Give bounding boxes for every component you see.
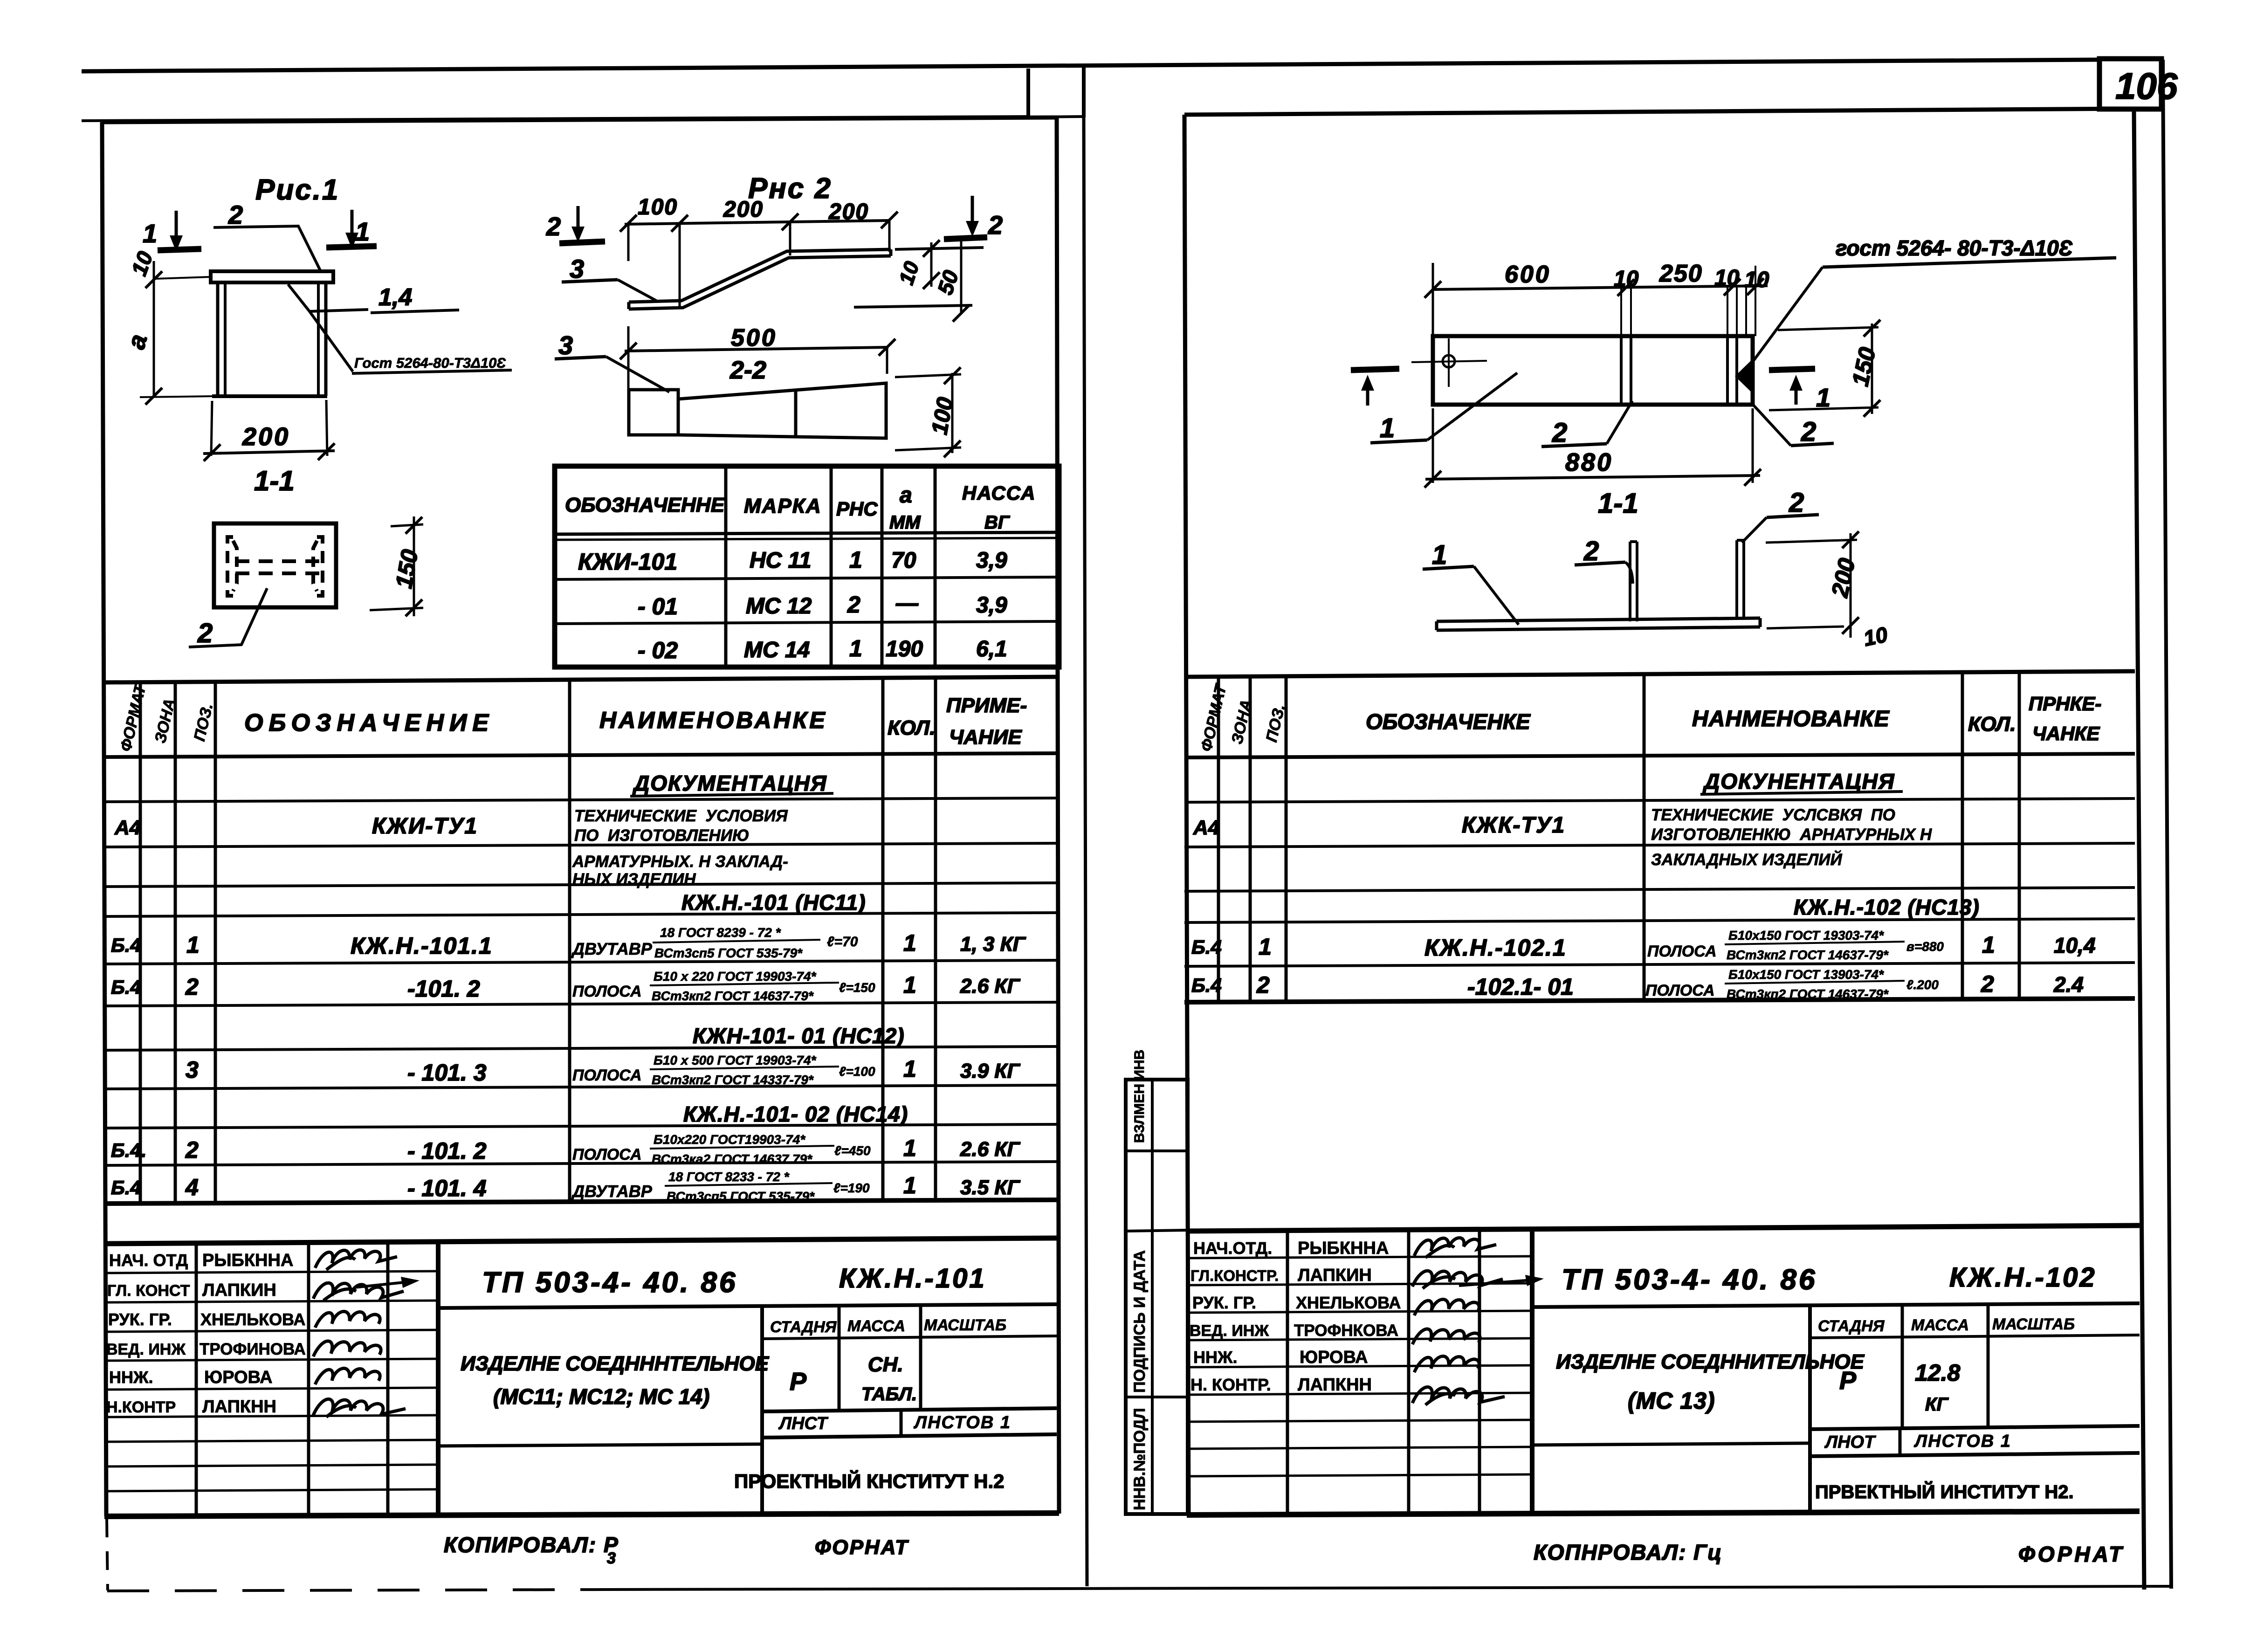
svg-text:ВГ: ВГ [984, 512, 1011, 533]
svg-text:КЖ.Н.-102.1: КЖ.Н.-102.1 [1424, 935, 1567, 961]
svg-text:НАССА: НАССА [962, 482, 1036, 504]
svg-text:Б.4: Б.4 [111, 1177, 141, 1198]
svg-text:ФОРНАТ: ФОРНАТ [815, 1536, 909, 1559]
svg-text:ВЗЛМЕН ИНВ: ВЗЛМЕН ИНВ [1132, 1050, 1147, 1143]
svg-text:РЫБКННА: РЫБКННА [1298, 1239, 1389, 1258]
svg-text:Рис.1: Рис.1 [255, 174, 339, 206]
svg-text:ЛАПКИН: ЛАПКИН [202, 1280, 276, 1300]
svg-text:ДОКУМЕНТАЦНЯ: ДОКУМЕНТАЦНЯ [632, 771, 827, 795]
svg-text:МАСШТАБ: МАСШТАБ [1992, 1315, 2075, 1333]
svg-text:ИЗДЕЛНЕ СОЕДННИТЕЛЬНОЕ: ИЗДЕЛНЕ СОЕДННИТЕЛЬНОЕ [1556, 1350, 1865, 1373]
svg-text:ТРОФНКОВА: ТРОФНКОВА [1294, 1322, 1398, 1340]
svg-text:ПОЛОСА: ПОЛОСА [1645, 982, 1715, 999]
svg-text:РУК. ГР.: РУК. ГР. [1192, 1293, 1256, 1312]
svg-text:-102.1- 01: -102.1- 01 [1467, 974, 1574, 1000]
svg-text:КЖН-101- 01 (НС12): КЖН-101- 01 (НС12) [693, 1024, 905, 1048]
svg-text:ПРОЕКТНЫЙ КНСТИТУТ Н.2: ПРОЕКТНЫЙ КНСТИТУТ Н.2 [734, 1470, 1005, 1492]
svg-text:2: 2 [847, 592, 860, 618]
svg-text:2-2: 2-2 [729, 356, 766, 384]
svg-text:2: 2 [185, 1137, 199, 1163]
svg-text:1-1: 1-1 [254, 465, 295, 496]
svg-text:КЖ.Н.-102: КЖ.Н.-102 [1949, 1262, 2097, 1293]
svg-text:КЖ.Н.-101- 02 (НС14): КЖ.Н.-101- 02 (НС14) [683, 1102, 908, 1126]
svg-text:НАЧ.ОТД.: НАЧ.ОТД. [1193, 1239, 1272, 1258]
svg-text:СН.: СН. [868, 1353, 903, 1376]
svg-text:2: 2 [1583, 536, 1599, 566]
svg-text:2.6 КГ: 2.6 КГ [960, 1138, 1020, 1161]
svg-text:ПО ИЗГОТОВЛЕНИЮ: ПО ИЗГОТОВЛЕНИЮ [574, 826, 749, 845]
svg-text:ОБОЗНАЧЕНКЕ: ОБОЗНАЧЕНКЕ [1366, 709, 1531, 734]
svg-text:ЧАНИЕ: ЧАНИЕ [949, 726, 1022, 749]
svg-text:МС 14: МС 14 [744, 638, 810, 662]
svg-text:ВЕД. ИНЖ: ВЕД. ИНЖ [106, 1341, 186, 1358]
svg-text:РУК. ГР.: РУК. ГР. [108, 1310, 172, 1329]
svg-text:ℓ=450: ℓ=450 [834, 1143, 871, 1158]
svg-text:3,9: 3,9 [976, 593, 1007, 618]
svg-text:ЮРОВА: ЮРОВА [204, 1368, 273, 1387]
svg-text:НС 11: НС 11 [750, 548, 812, 573]
svg-text:70: 70 [891, 548, 916, 573]
svg-text:18 ГОСТ 8239 - 72 *: 18 ГОСТ 8239 - 72 * [660, 925, 781, 940]
svg-text:1: 1 [1432, 540, 1447, 570]
svg-text:2: 2 [228, 200, 243, 229]
svg-text:СТАДНЯ: СТАДНЯ [770, 1318, 837, 1336]
svg-text:РЫБКННА: РЫБКННА [202, 1251, 293, 1270]
svg-text:ПРИМЕ-: ПРИМЕ- [946, 694, 1027, 717]
svg-text:ТЕХНИЧЕСКИЕ УСЛОВИЯ: ТЕХНИЧЕСКИЕ УСЛОВИЯ [574, 807, 788, 825]
svg-text:ТАБЛ.: ТАБЛ. [861, 1384, 917, 1404]
svg-text:КЖ.Н.-101.1: КЖ.Н.-101.1 [351, 933, 493, 959]
svg-text:ГЛ. КОНСТ: ГЛ. КОНСТ [107, 1282, 190, 1300]
svg-text:ℓ=150: ℓ=150 [839, 980, 875, 995]
svg-text:—: — [895, 591, 919, 616]
svg-text:ТП 503-4- 40. 86: ТП 503-4- 40. 86 [1562, 1264, 1817, 1296]
svg-text:1-1: 1-1 [1598, 488, 1638, 519]
svg-text:ПОЛОСА: ПОЛОСА [572, 1146, 642, 1163]
svg-text:ПОЛОСА: ПОЛОСА [1647, 943, 1717, 960]
svg-text:ВЕД. ИНЖ: ВЕД. ИНЖ [1190, 1322, 1269, 1340]
svg-text:ВСт3ка2 ГОСТ 14637.79*: ВСт3ка2 ГОСТ 14637.79* [652, 1152, 812, 1166]
svg-text:ЮРОВА: ЮРОВА [1300, 1348, 1368, 1367]
svg-text:200: 200 [242, 423, 290, 451]
svg-text:1: 1 [1259, 934, 1272, 960]
svg-text:ЧАНКЕ: ЧАНКЕ [2032, 723, 2100, 744]
svg-text:3,9: 3,9 [976, 548, 1007, 573]
svg-text:1: 1 [903, 1056, 916, 1082]
svg-text:АРМАТУРНЫХ. Н ЗАКЛАД-: АРМАТУРНЫХ. Н ЗАКЛАД- [572, 853, 788, 871]
svg-text:Гост 5264-80-Т3Δ10Ɛ: Гост 5264-80-Т3Δ10Ɛ [354, 355, 506, 371]
svg-text:ЗАКЛАДНЫХ ИЗДЕЛИЙ: ЗАКЛАДНЫХ ИЗДЕЛИЙ [1651, 850, 1842, 869]
svg-text:ПРНКЕ-: ПРНКЕ- [2029, 693, 2101, 715]
svg-text:ЛНСТОВ 1: ЛНСТОВ 1 [1913, 1432, 2011, 1451]
svg-text:1: 1 [849, 635, 862, 661]
svg-text:Н. КОНТР.: Н. КОНТР. [1190, 1375, 1271, 1394]
svg-text:1: 1 [1982, 932, 1995, 958]
svg-text:12.8: 12.8 [1915, 1360, 1961, 1386]
svg-text:МАРКА: МАРКА [744, 495, 822, 517]
svg-text:(МС 13): (МС 13) [1628, 1388, 1715, 1414]
svg-text:2: 2 [1552, 418, 1567, 448]
svg-text:МС 12: МС 12 [746, 594, 812, 619]
svg-text:КОПИРОВАЛ: Р: КОПИРОВАЛ: Р [444, 1533, 619, 1557]
svg-text:10: 10 [1744, 268, 1769, 292]
svg-text:ИЗДЕЛНЕ СОЕДНННТЕЛЬНОЕ: ИЗДЕЛНЕ СОЕДНННТЕЛЬНОЕ [461, 1352, 770, 1375]
svg-text:ПОЛОСА: ПОЛОСА [572, 983, 642, 1000]
svg-text:Б.4: Б.4 [111, 934, 141, 956]
svg-text:200: 200 [723, 197, 764, 222]
svg-text:ПОДПИСЬ И ДАТА: ПОДПИСЬ И ДАТА [1131, 1250, 1149, 1393]
svg-text:880: 880 [1565, 448, 1613, 476]
svg-text:1: 1 [903, 1172, 916, 1198]
svg-text:2: 2 [197, 618, 213, 648]
svg-text:Р: Р [1839, 1367, 1857, 1395]
svg-text:ПРВЕКТНЫЙ ИНСТИТУТ Н2.: ПРВЕКТНЫЙ ИНСТИТУТ Н2. [1815, 1481, 2074, 1502]
svg-text:2: 2 [185, 974, 199, 1000]
svg-text:ℓ=70: ℓ=70 [827, 934, 858, 950]
svg-text:КЖИ-ТУ1: КЖИ-ТУ1 [372, 814, 478, 839]
svg-text:ЛНСТОВ 1: ЛНСТОВ 1 [913, 1413, 1011, 1432]
svg-text:2: 2 [546, 212, 561, 241]
svg-text:3.5 КГ: 3.5 КГ [960, 1176, 1020, 1199]
svg-text:А4: А4 [1193, 816, 1219, 839]
svg-text:- 101. 4: - 101. 4 [407, 1175, 487, 1201]
svg-text:- 02: - 02 [638, 637, 678, 663]
svg-text:- 101. 2: - 101. 2 [407, 1138, 487, 1164]
svg-text:3: 3 [570, 254, 584, 283]
svg-text:гост 5264- 80-Т3-Δ10Ɛ: гост 5264- 80-Т3-Δ10Ɛ [1836, 236, 2073, 260]
svg-text:1: 1 [849, 547, 862, 573]
svg-text:ℓ.200: ℓ.200 [1906, 977, 1939, 992]
svg-text:Б.4: Б.4 [1191, 974, 1222, 996]
svg-text:Б.4.: Б.4. [111, 1139, 146, 1161]
svg-text:ЛНОТ: ЛНОТ [1824, 1432, 1876, 1452]
svg-text:ПОЛОСА: ПОЛОСА [572, 1067, 642, 1084]
svg-text:1: 1 [186, 932, 200, 958]
svg-text:ХНЕЛЬКОВА: ХНЕЛЬКОВА [200, 1310, 305, 1329]
svg-text:ГЛ.КОНСТР.: ГЛ.КОНСТР. [1190, 1267, 1279, 1284]
svg-text:1: 1 [1380, 413, 1395, 443]
svg-text:3: 3 [558, 330, 573, 360]
svg-text:250: 250 [1659, 260, 1703, 287]
svg-text:в=880: в=880 [1906, 939, 1944, 954]
svg-text:ВСт3кп2 ГОСТ 14337-79*: ВСт3кп2 ГОСТ 14337-79* [652, 1073, 814, 1087]
svg-text:ДОКУНЕНТАЦНЯ: ДОКУНЕНТАЦНЯ [1702, 769, 1895, 793]
svg-text:ХНЕЛЬКОВА: ХНЕЛЬКОВА [1296, 1293, 1401, 1312]
svg-text:-101. 2: -101. 2 [407, 976, 480, 1002]
svg-text:2.6 КГ: 2.6 КГ [960, 975, 1020, 998]
svg-text:1,4: 1,4 [378, 284, 412, 311]
svg-text:3: 3 [186, 1057, 199, 1083]
svg-text:КЖ.Н.-101: КЖ.Н.-101 [839, 1263, 986, 1294]
svg-text:КЖК-ТУ1: КЖК-ТУ1 [1462, 813, 1565, 838]
svg-text:100: 100 [638, 195, 678, 220]
svg-text:КГ: КГ [1925, 1394, 1949, 1415]
svg-text:ВСт3кп2 ГОСТ 14637-79*: ВСт3кп2 ГОСТ 14637-79* [1727, 987, 1889, 1001]
svg-text:ФОРНАТ: ФОРНАТ [2018, 1542, 2125, 1566]
svg-text:КОПНРОВАЛ: Гц: КОПНРОВАЛ: Гц [1534, 1540, 1722, 1564]
svg-text:ТЕХНИЧЕСКИЕ УСЛСВКЯ ПО: ТЕХНИЧЕСКИЕ УСЛСВКЯ ПО [1651, 806, 1895, 824]
svg-text:ЛАПКИН: ЛАПКИН [1298, 1266, 1372, 1285]
svg-text:ТРОФИНОВА: ТРОФИНОВА [200, 1340, 306, 1358]
svg-text:3.9 КГ: 3.9 КГ [960, 1060, 1020, 1082]
svg-text:ℓ=190: ℓ=190 [833, 1181, 870, 1195]
svg-text:ВСт3кп2 ГОСТ 14637-79*: ВСт3кп2 ГОСТ 14637-79* [652, 989, 814, 1003]
svg-text:А4: А4 [114, 816, 141, 839]
svg-text:- 01: - 01 [638, 593, 678, 619]
svg-text:10,4: 10,4 [2054, 933, 2096, 957]
svg-text:МАССА: МАССА [1911, 1316, 1969, 1334]
svg-text:Б10x220 ГОСТ19903-74*: Б10x220 ГОСТ19903-74* [654, 1132, 805, 1147]
svg-text:ДВУТАВР: ДВУТАВР [571, 1182, 653, 1201]
svg-text:ВСт3кп2 ГОСТ 14637-79*: ВСт3кп2 ГОСТ 14637-79* [1727, 948, 1889, 962]
svg-text:НАЧ. ОТД: НАЧ. ОТД [109, 1251, 188, 1270]
svg-text:ННЖ.: ННЖ. [109, 1368, 153, 1387]
svg-text:600: 600 [1505, 261, 1551, 288]
svg-text:КОЛ.: КОЛ. [1968, 713, 2016, 736]
svg-text:2: 2 [1801, 417, 1816, 447]
svg-text:Б10х150 ГОСТ 13903-74*: Б10х150 ГОСТ 13903-74* [1728, 967, 1884, 982]
svg-text:ЛАПКНН: ЛАПКНН [202, 1397, 276, 1417]
svg-text:106: 106 [2115, 65, 2178, 107]
svg-text:a: a [900, 483, 912, 508]
svg-text:НЫХ ИЗДЕЛИН: НЫХ ИЗДЕЛИН [572, 870, 696, 888]
svg-text:КЖ.Н.-101 (НС11): КЖ.Н.-101 (НС11) [681, 890, 866, 915]
svg-text:1: 1 [355, 217, 370, 246]
svg-text:2.4: 2.4 [2053, 972, 2084, 997]
svg-text:ОБОЗНАЧЕННЕ: ОБОЗНАЧЕННЕ [565, 494, 725, 516]
svg-text:Б10 x 500 ГОСТ 19903-74*: Б10 x 500 ГОСТ 19903-74* [654, 1053, 817, 1067]
svg-text:Б.4: Б.4 [1191, 936, 1222, 958]
svg-text:НАИМЕНОВАНКЕ: НАИМЕНОВАНКЕ [599, 707, 827, 733]
svg-text:2: 2 [1256, 972, 1270, 998]
svg-text:ВСт3сп5 ГОСТ 535-79*: ВСт3сп5 ГОСТ 535-79* [654, 946, 803, 960]
svg-text:ТП 503-4- 40. 86: ТП 503-4- 40. 86 [482, 1267, 738, 1299]
svg-text:ℓ=100: ℓ=100 [839, 1064, 875, 1079]
svg-text:500: 500 [731, 324, 777, 351]
svg-text:ННЖ.: ННЖ. [1193, 1348, 1238, 1367]
svg-text:ДВУТАВР: ДВУТАВР [571, 939, 653, 958]
svg-text:ВСт3сп5 ГОСТ 535-79*: ВСт3сп5 ГОСТ 535-79* [667, 1189, 815, 1204]
svg-text:МАСШТАБ: МАСШТАБ [924, 1316, 1006, 1334]
svg-text:2: 2 [1789, 488, 1804, 518]
svg-text:КЖ.Н.-102 (НС13): КЖ.Н.-102 (НС13) [1794, 895, 1980, 919]
svg-text:1: 1 [903, 1135, 916, 1161]
svg-text:Н.КОНТР: Н.КОНТР [106, 1398, 176, 1416]
svg-text:Р: Р [790, 1368, 807, 1396]
svg-text:190: 190 [886, 637, 923, 661]
svg-text:1: 1 [143, 219, 157, 248]
svg-text:Б10x150 ГОСТ 19303-74*: Б10x150 ГОСТ 19303-74* [1728, 928, 1884, 943]
svg-text:ИЗГОТОВЛЕНКЮ АРНАТУРНЫХ Н: ИЗГОТОВЛЕНКЮ АРНАТУРНЫХ Н [1651, 826, 1932, 844]
svg-text:1: 1 [903, 930, 916, 956]
svg-text:КЖИ-101: КЖИ-101 [578, 549, 677, 575]
svg-text:6,1: 6,1 [976, 637, 1007, 661]
svg-text:3: 3 [607, 1549, 616, 1567]
svg-text:ОБОЗНАЧЕНИЕ: ОБОЗНАЧЕНИЕ [244, 709, 494, 737]
svg-text:КОЛ.: КОЛ. [888, 716, 936, 739]
svg-text:Б10 x 220 ГОСТ 19903-74*: Б10 x 220 ГОСТ 19903-74* [654, 969, 817, 984]
svg-text:Б.4: Б.4 [111, 976, 141, 998]
svg-text:СТАДНЯ: СТАДНЯ [1818, 1317, 1885, 1335]
svg-text:(МС11; МС12; МС 14): (МС11; МС12; МС 14) [493, 1384, 709, 1409]
svg-text:1: 1 [903, 972, 916, 998]
svg-text:1, 3 КГ: 1, 3 КГ [960, 933, 1026, 956]
svg-text:ННВ.№ПОДЛ: ННВ.№ПОДЛ [1131, 1408, 1149, 1510]
svg-text:НАНМЕНОВАНКЕ: НАНМЕНОВАНКЕ [1692, 707, 1890, 731]
svg-text:4: 4 [185, 1174, 199, 1200]
svg-text:РНС: РНС [836, 498, 878, 520]
svg-text:ЛАПКНН: ЛАПКНН [1298, 1375, 1372, 1395]
svg-text:- 101. 3: - 101. 3 [407, 1060, 487, 1086]
svg-text:2: 2 [1981, 971, 1994, 997]
svg-text:ЛНСТ: ЛНСТ [778, 1414, 829, 1433]
svg-text:18 ГОСТ 8233 - 72 *: 18 ГОСТ 8233 - 72 * [668, 1170, 790, 1184]
svg-text:ММ: ММ [889, 512, 921, 533]
svg-text:МАССА: МАССА [847, 1317, 905, 1335]
svg-text:2: 2 [988, 210, 1003, 240]
